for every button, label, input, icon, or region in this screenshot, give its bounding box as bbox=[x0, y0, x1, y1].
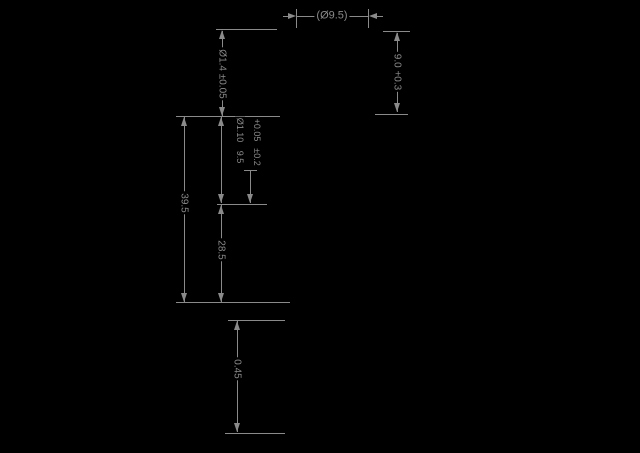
extension-line-bottom-bottom bbox=[225, 433, 285, 434]
top-diameter-label: (Ø9.5) bbox=[314, 10, 349, 23]
right-dim-tick-bottom bbox=[375, 114, 408, 115]
arrow-up-icon bbox=[218, 117, 224, 126]
dimension-drawing-canvas: (Ø9.5) Ø1.4 ±0.05 9.0 +0.3 39.5 Ø1.10 +0… bbox=[0, 0, 640, 453]
arrow-down-icon bbox=[218, 194, 224, 203]
arrow-up-icon bbox=[234, 321, 240, 330]
inner-upper-dim-line bbox=[221, 117, 222, 203]
overall-length-label: 39.5 bbox=[178, 191, 191, 214]
arrow-up-icon bbox=[181, 117, 187, 126]
arrow-left-icon bbox=[369, 13, 377, 19]
extension-line-middle bbox=[217, 204, 267, 205]
extension-line-lower bbox=[176, 302, 290, 303]
tip-height-label: Ø1.4 ±0.05 bbox=[216, 47, 229, 100]
top-dim-stub-right bbox=[377, 16, 383, 17]
arrow-down-icon bbox=[247, 194, 253, 203]
extension-line-top-left bbox=[216, 29, 277, 30]
arrow-down-icon bbox=[234, 423, 240, 432]
inner-gap-tol-label: ±0.2 bbox=[252, 147, 262, 166]
bottom-section-label: 0.45 bbox=[231, 357, 244, 380]
top-dim-tick-left bbox=[296, 9, 297, 28]
arrow-down-icon bbox=[218, 293, 224, 302]
arrow-down-icon bbox=[219, 107, 225, 116]
arrow-up-icon bbox=[394, 32, 400, 41]
arrow-down-icon bbox=[394, 103, 400, 112]
right-depth-label: 9.0 +0.3 bbox=[391, 52, 404, 92]
arrow-up-icon bbox=[218, 205, 224, 214]
inner-diameter-label: Ø1.10 bbox=[235, 117, 245, 144]
inner-diameter-tol-label: +0.05 bbox=[252, 118, 262, 143]
extension-line-upper bbox=[176, 116, 280, 117]
arrow-up-icon bbox=[219, 30, 225, 39]
lower-section-label: 28.5 bbox=[215, 238, 228, 261]
arrow-down-icon bbox=[181, 293, 187, 302]
inner-gap-label: 9.5 bbox=[235, 150, 245, 165]
arrow-right-icon bbox=[288, 13, 296, 19]
